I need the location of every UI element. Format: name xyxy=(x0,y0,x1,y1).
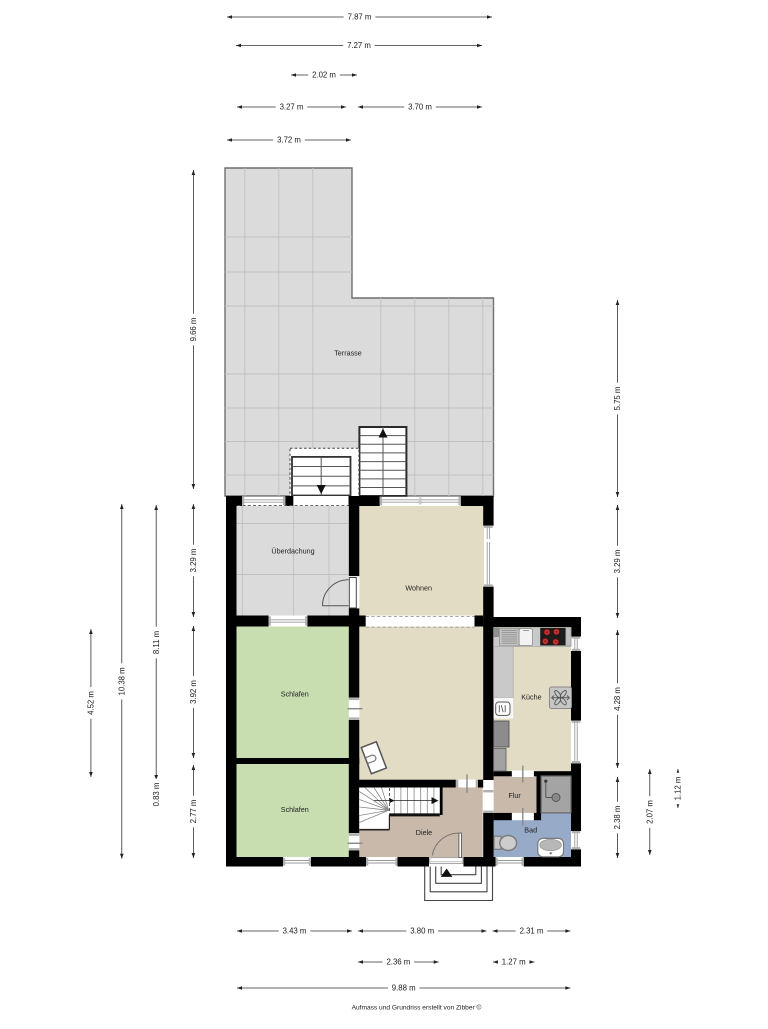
svg-text:3.29 m: 3.29 m xyxy=(613,550,622,574)
svg-text:3.92 m: 3.92 m xyxy=(189,680,198,704)
svg-text:1.12 m: 1.12 m xyxy=(674,777,683,801)
svg-text:10.38 m: 10.38 m xyxy=(118,667,127,695)
svg-text:4.52 m: 4.52 m xyxy=(87,691,96,715)
svg-text:Überdachung: Überdachung xyxy=(271,547,314,556)
svg-text:3.29 m: 3.29 m xyxy=(189,549,198,573)
svg-text:Schlafen: Schlafen xyxy=(281,690,309,699)
svg-text:Terrasse: Terrasse xyxy=(334,349,362,358)
svg-text:4.28 m: 4.28 m xyxy=(613,687,622,711)
svg-text:2.36 m: 2.36 m xyxy=(386,958,410,967)
svg-text:Aufmass und Grundriss erstellt: Aufmass und Grundriss erstellt von Zibbe… xyxy=(352,1004,482,1012)
svg-text:2.77 m: 2.77 m xyxy=(189,800,198,824)
svg-text:2.38 m: 2.38 m xyxy=(613,806,622,830)
svg-text:2.31 m: 2.31 m xyxy=(520,927,544,936)
svg-text:5.75 m: 5.75 m xyxy=(613,387,622,411)
svg-text:2.02 m: 2.02 m xyxy=(312,71,336,80)
svg-text:Flur: Flur xyxy=(508,791,521,800)
svg-text:9.66 m: 9.66 m xyxy=(189,318,198,342)
svg-text:3.70 m: 3.70 m xyxy=(408,103,432,112)
svg-text:Diele: Diele xyxy=(416,828,432,837)
svg-text:Bad: Bad xyxy=(524,825,537,834)
svg-text:8.11 m: 8.11 m xyxy=(152,631,161,654)
svg-text:7.87 m: 7.87 m xyxy=(348,13,372,22)
svg-text:9.88 m: 9.88 m xyxy=(392,984,416,993)
svg-text:1.27 m: 1.27 m xyxy=(502,958,526,967)
svg-text:Schlafen: Schlafen xyxy=(281,805,309,814)
svg-text:3.43 m: 3.43 m xyxy=(283,927,307,936)
svg-text:3.72 m: 3.72 m xyxy=(277,136,301,145)
svg-text:3.27 m: 3.27 m xyxy=(280,103,304,112)
svg-text:7.27 m: 7.27 m xyxy=(347,41,371,50)
svg-text:2.07 m: 2.07 m xyxy=(646,800,655,824)
svg-text:Küche: Küche xyxy=(521,692,541,701)
svg-text:3.80 m: 3.80 m xyxy=(410,927,434,936)
svg-text:0.83 m: 0.83 m xyxy=(152,783,161,807)
svg-text:Wohnen: Wohnen xyxy=(405,584,432,593)
